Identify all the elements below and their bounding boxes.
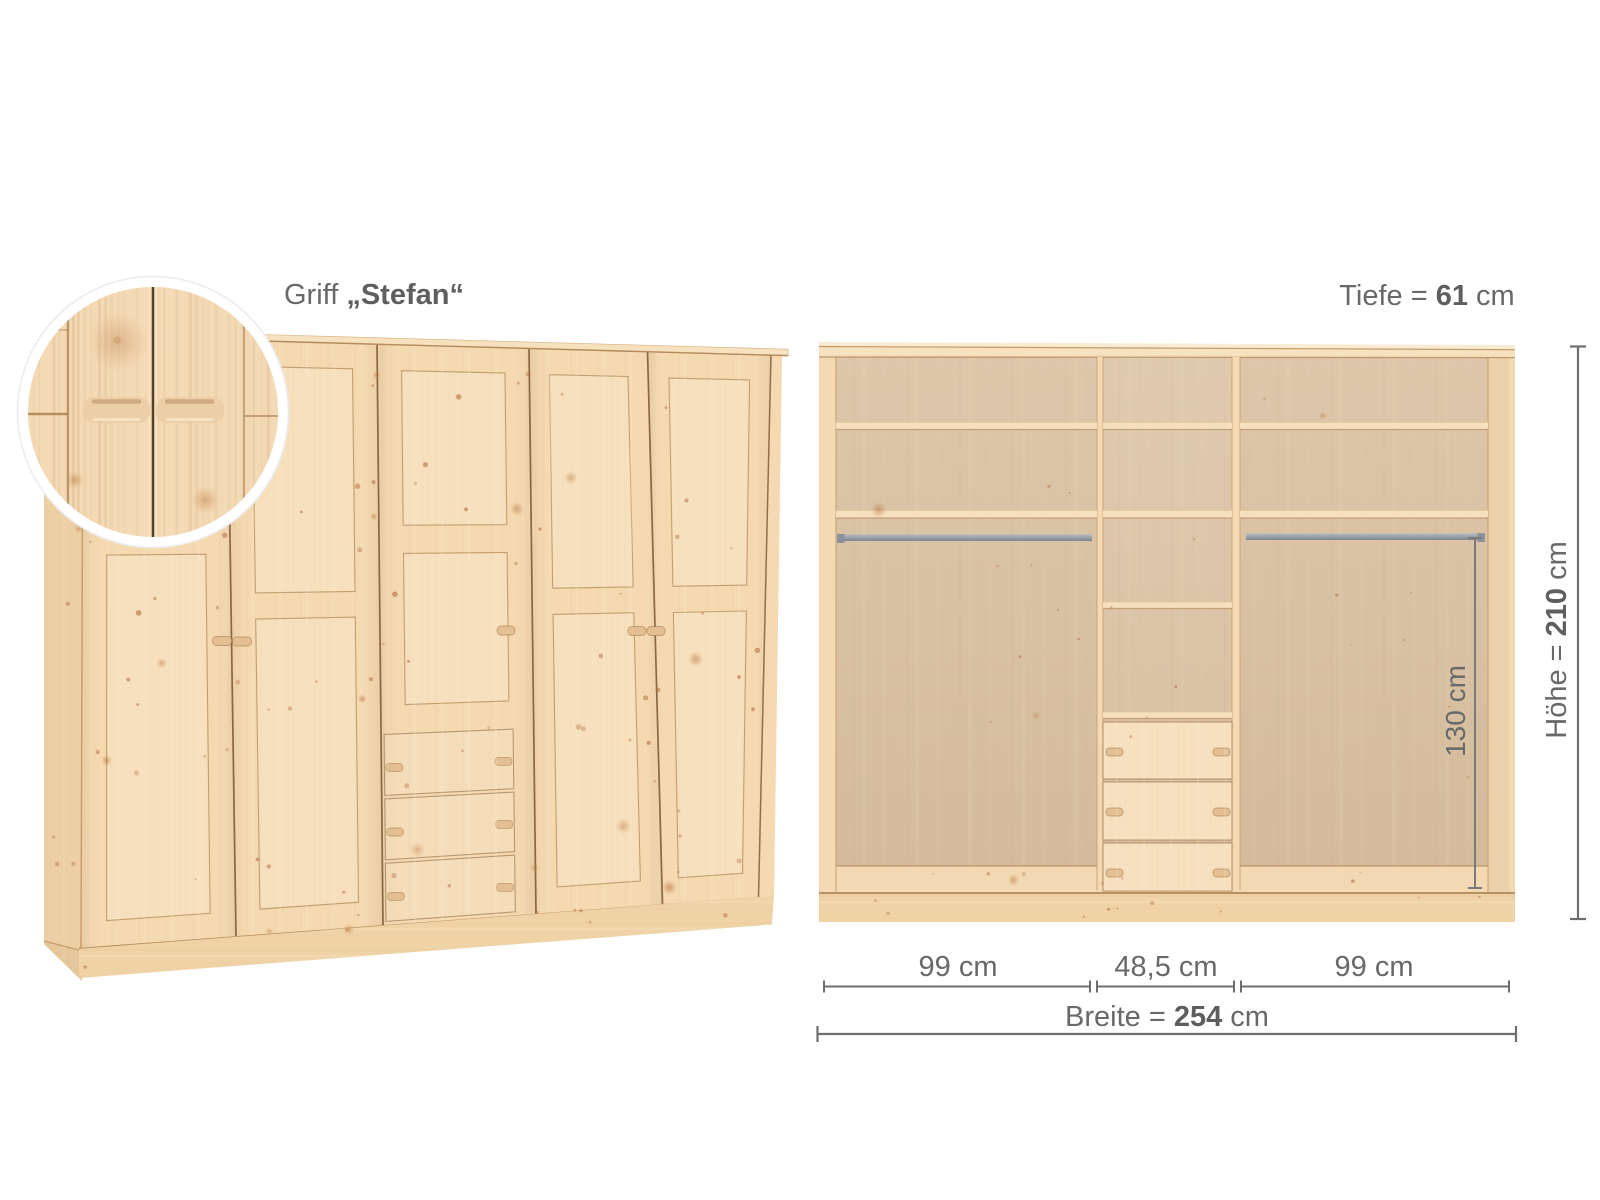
- svg-text:130 cm: 130 cm: [1440, 665, 1471, 757]
- svg-text:48,5 cm: 48,5 cm: [1114, 951, 1217, 983]
- svg-text:Griff „Stefan“: Griff „Stefan“: [284, 279, 464, 311]
- svg-text:Höhe = 210 cm: Höhe = 210 cm: [1541, 541, 1573, 739]
- svg-text:Tiefe = 61 cm: Tiefe = 61 cm: [1339, 280, 1514, 312]
- svg-text:99 cm: 99 cm: [1335, 951, 1414, 983]
- svg-text:99 cm: 99 cm: [919, 951, 998, 983]
- svg-text:Breite = 254 cm: Breite = 254 cm: [1065, 1001, 1269, 1033]
